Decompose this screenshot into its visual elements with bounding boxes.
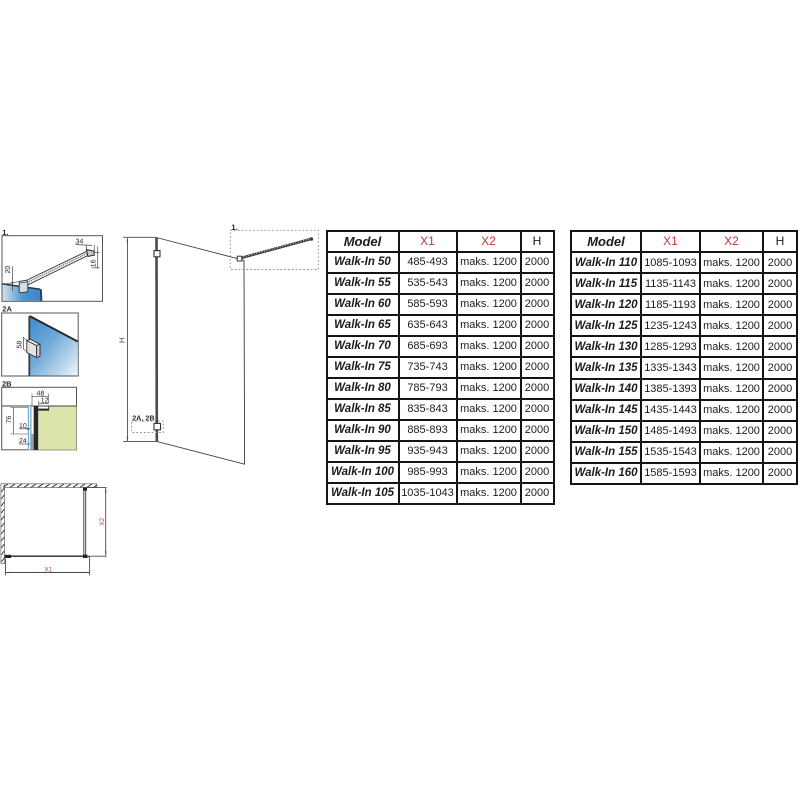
svg-text:20: 20 [5,266,12,274]
svg-text:16: 16 [90,259,97,267]
svg-text:2A, 2B: 2A, 2B [132,413,154,422]
svg-text:X1: X1 [45,567,53,574]
svg-text:76: 76 [6,416,13,424]
svg-text:1.: 1. [231,223,238,232]
svg-text:58: 58 [17,341,24,349]
svg-text:X2: X2 [99,517,106,525]
svg-text:H: H [118,338,127,343]
svg-text:2A: 2A [2,304,12,313]
